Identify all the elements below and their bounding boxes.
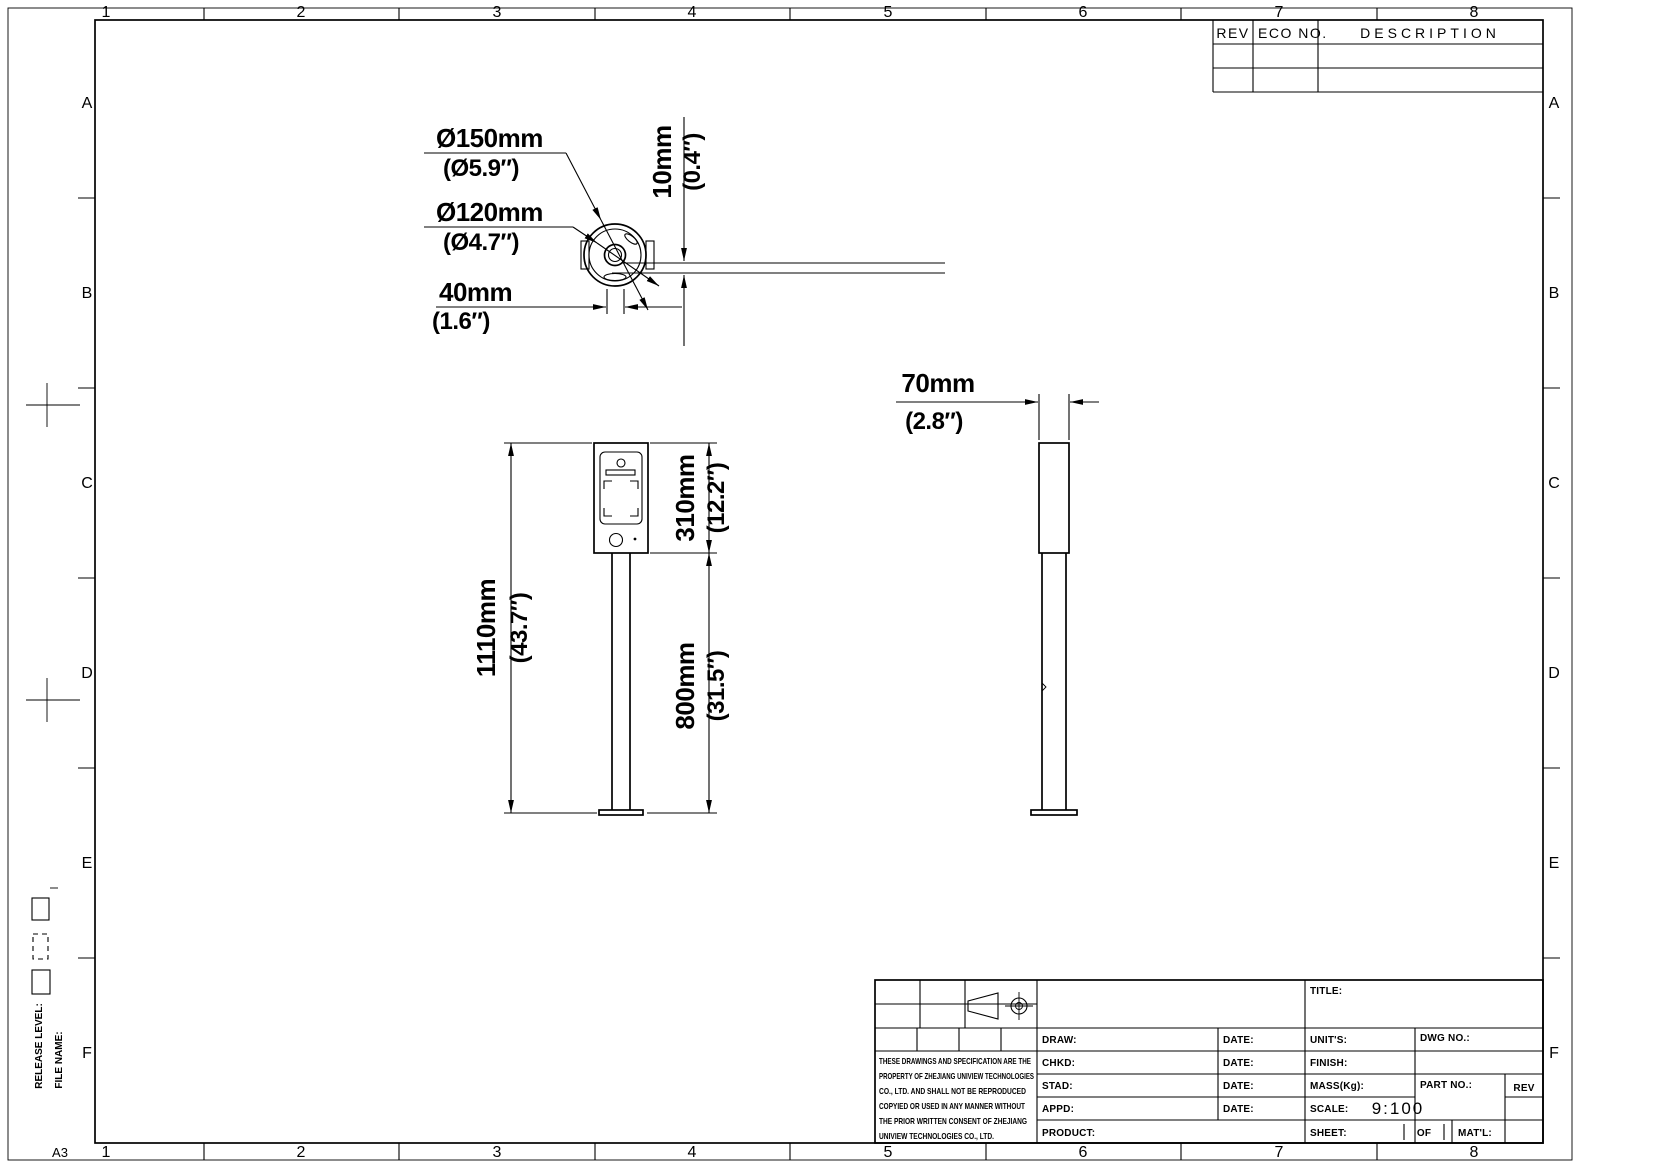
dim-label: 800mm — [670, 642, 700, 729]
dim-label: (31.5″) — [703, 651, 730, 722]
drawing-frame — [95, 20, 1543, 1143]
stad-label: STAD: — [1042, 1081, 1073, 1092]
grid-row-label: E — [82, 855, 93, 872]
drawing-canvas: 1 2 3 4 5 6 7 8 1 2 3 4 5 6 7 8 A B C D … — [0, 0, 1654, 1169]
dwg-no-label: DWG NO.: — [1420, 1033, 1470, 1044]
dim-label: (1.6″) — [432, 308, 490, 335]
grid-row-label: C — [1548, 475, 1560, 492]
finish-label: FINISH: — [1310, 1058, 1348, 1069]
camera-hole — [617, 459, 625, 467]
side-view: 70mm (2.8″) — [896, 368, 1099, 815]
eco-no-header: ECO NO. — [1258, 25, 1328, 41]
units-label: UNIT'S: — [1310, 1035, 1347, 1046]
dim-label: (Ø5.9″) — [443, 155, 519, 182]
grid-col-label: 3 — [493, 1144, 502, 1161]
terminal-panel — [600, 452, 642, 524]
grid-row-label: B — [82, 285, 93, 302]
dim-label: (0.4″) — [679, 133, 706, 191]
flange-slot — [604, 274, 626, 281]
chkd-label: CHKD: — [1042, 1058, 1075, 1069]
disclaimer-line: UNIVIEW TECHNOLOGIES CO., LTD. — [879, 1131, 994, 1141]
dim-label: (2.8″) — [905, 408, 963, 435]
base-plate-side — [1031, 810, 1077, 815]
grid-col-label: 7 — [1275, 1144, 1284, 1161]
dim-height310: 310mm (12.2″) — [650, 443, 730, 553]
screen-corner-brackets — [604, 481, 638, 516]
grid-col-label: 5 — [884, 1144, 893, 1161]
grid-col-label: 6 — [1079, 4, 1088, 21]
sheet-label: SHEET: — [1310, 1128, 1347, 1139]
dim-width70: 70mm (2.8″) — [896, 368, 1099, 440]
grid-row-label: F — [82, 1045, 92, 1062]
title-block: THESE DRAWINGS AND SPECIFICATION ARE THE… — [875, 980, 1543, 1143]
panel-slot — [606, 470, 635, 475]
reader-circle — [610, 534, 623, 547]
product-label: PRODUCT: — [1042, 1128, 1095, 1139]
drawing-sheet: 1 2 3 4 5 6 7 8 1 2 3 4 5 6 7 8 A B C D … — [0, 0, 1654, 1169]
date-label: DATE: — [1223, 1081, 1254, 1092]
disclaimer-line: CO., LTD. AND SHALL NOT BE REPRODUCED — [879, 1086, 1026, 1096]
dim-label: 1110mm — [471, 579, 501, 677]
grid-col-label: 5 — [884, 4, 893, 21]
description-header: DESCRIPTION — [1360, 25, 1500, 41]
indicator-dot — [634, 538, 637, 541]
dim-label: 310mm — [670, 454, 700, 541]
sheet-size-label: A3 — [52, 1145, 68, 1160]
grid-row-label: D — [1548, 665, 1560, 682]
file-name-label: FILE NAME: — [54, 1031, 65, 1088]
dim-width40: 40mm (1.6″) — [432, 277, 682, 335]
dim-height1110: 1110mm (43.7″) — [471, 443, 597, 813]
scale-value: 9:100 — [1372, 1099, 1425, 1118]
revision-table: REV ECO NO. DESCRIPTION — [1213, 20, 1543, 92]
grid-col-label: 8 — [1470, 4, 1479, 21]
release-level-label: RELEASE LEVEL: — [34, 1003, 45, 1089]
matl-label: MAT'L: — [1458, 1128, 1492, 1139]
grid-col-label: 6 — [1079, 1144, 1088, 1161]
grid-col-label: 3 — [493, 4, 502, 21]
date-label: DATE: — [1223, 1035, 1254, 1046]
dim-label: 10mm — [647, 125, 677, 198]
grid-col-label: 8 — [1470, 1144, 1479, 1161]
dim-label: (Ø4.7″) — [443, 229, 519, 256]
scale-label: SCALE: — [1310, 1104, 1348, 1115]
grid-row-label: A — [1549, 95, 1560, 112]
grid-row-label: D — [81, 665, 93, 682]
centering-mark — [26, 678, 80, 722]
grid-row-label: B — [1549, 285, 1560, 302]
projection-symbol-icon — [968, 992, 1033, 1020]
base-plate — [599, 810, 643, 815]
title-label: TITLE: — [1310, 986, 1342, 997]
housing-side — [1039, 443, 1069, 553]
top-view: Ø150mm (Ø5.9″) Ø120mm (Ø4.7″) 40mm (1.6″… — [424, 117, 945, 346]
grid-col-label: 7 — [1275, 4, 1284, 21]
date-label: DATE: — [1223, 1104, 1254, 1115]
disclaimer-line: COPYIED OR USED IN ANY MANNER WITHOUT — [879, 1101, 1026, 1111]
grid-col-label: 2 — [297, 4, 306, 21]
dim-label: Ø120mm — [436, 197, 543, 227]
dim-thk10: 10mm (0.4″) — [612, 117, 945, 346]
dim-label: 40mm — [439, 277, 512, 307]
grid-col-label: 4 — [688, 4, 697, 21]
mass-label: MASS(Kg): — [1310, 1081, 1364, 1092]
draw-label: DRAW: — [1042, 1035, 1077, 1046]
dim-label: 70mm — [901, 368, 974, 398]
part-no-label: PART NO.: — [1420, 1080, 1472, 1091]
grid-row-label: E — [1549, 855, 1560, 872]
grid-col-label: 1 — [102, 1144, 111, 1161]
grid-row-label: C — [81, 475, 93, 492]
front-view: 1110mm (43.7″) 310mm (12.2″) 800mm (31.5… — [471, 443, 730, 815]
dim-label: (43.7″) — [506, 593, 533, 664]
grid-row-label: A — [82, 95, 93, 112]
rev-header: REV — [1216, 25, 1249, 41]
disclaimer-line: THE PRIOR WRITTEN CONSENT OF ZHEJIANG — [879, 1116, 1027, 1126]
grid-col-label: 2 — [297, 1144, 306, 1161]
fold-marks — [32, 888, 58, 994]
date-label: DATE: — [1223, 1058, 1254, 1069]
disclaimer-line: THESE DRAWINGS AND SPECIFICATION ARE THE — [879, 1056, 1031, 1066]
dim-label: Ø150mm — [436, 123, 543, 153]
disclaimer-text: THESE DRAWINGS AND SPECIFICATION ARE THE… — [879, 1056, 1034, 1141]
dim-height800: 800mm (31.5″) — [647, 553, 730, 813]
grid-col-label: 1 — [102, 4, 111, 21]
grid-row-label: F — [1549, 1045, 1559, 1062]
of-label: OF — [1417, 1128, 1431, 1139]
dim-label: (12.2″) — [703, 463, 730, 534]
centering-mark — [26, 383, 80, 427]
grid-col-label: 4 — [688, 1144, 697, 1161]
flange-right-tab — [646, 241, 654, 269]
disclaimer-line: PROPERTY OF ZHEJIANG UNIVIEW TECHNOLOGIE… — [879, 1071, 1034, 1081]
appd-label: APPD: — [1042, 1104, 1074, 1115]
rev-cell-label: REV — [1513, 1083, 1534, 1094]
